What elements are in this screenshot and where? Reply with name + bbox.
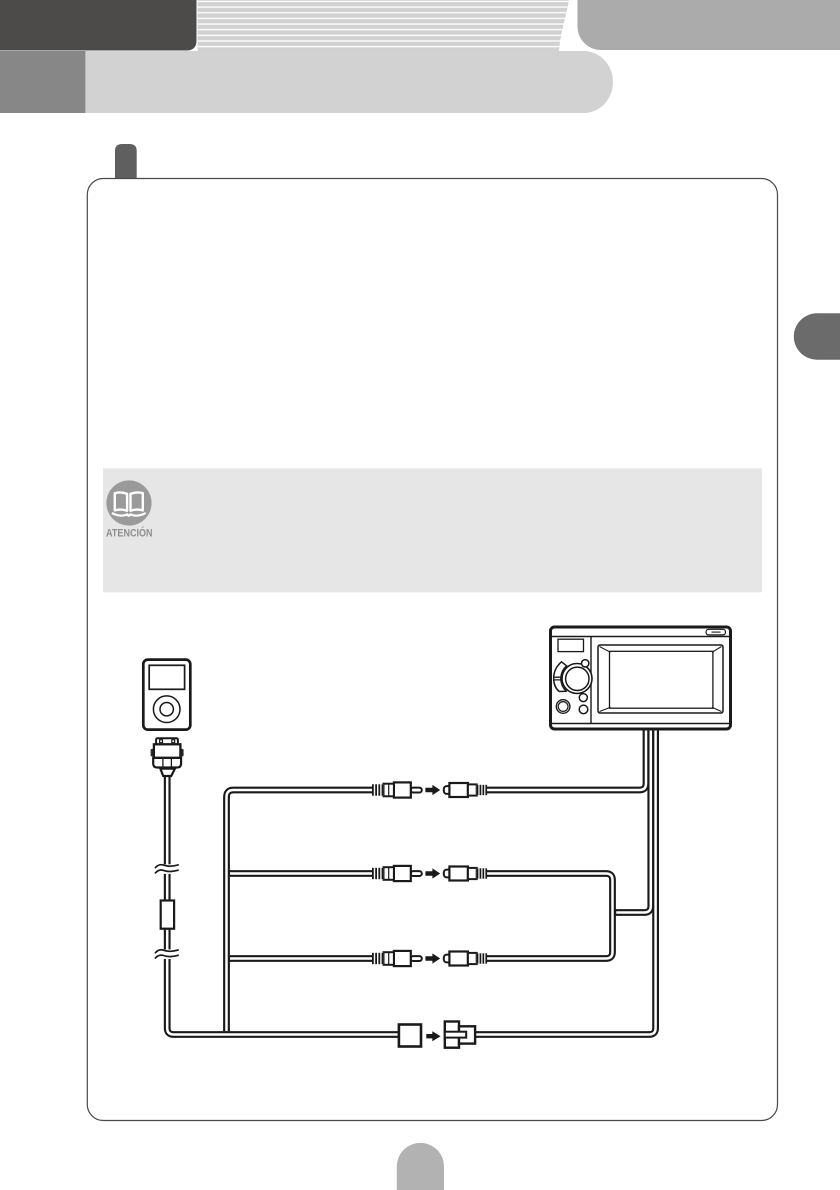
svg-text:ATENCIÓN: ATENCIÓN xyxy=(106,526,153,539)
